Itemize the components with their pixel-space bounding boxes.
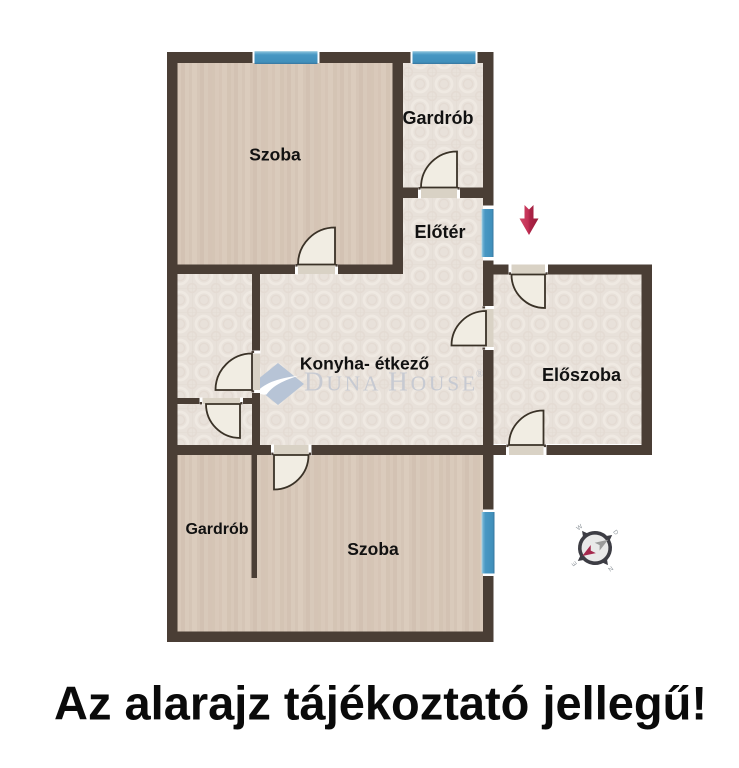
svg-text:®: ® — [476, 369, 484, 380]
svg-text:E: E — [571, 560, 579, 568]
svg-text:Előtér: Előtér — [414, 222, 465, 242]
svg-text:N: N — [606, 564, 614, 572]
svg-text:Konyha- étkező: Konyha- étkező — [300, 354, 429, 374]
svg-text:W: W — [575, 523, 584, 532]
svg-text:Szoba: Szoba — [347, 539, 399, 559]
svg-text:Gardrób: Gardrób — [185, 521, 248, 538]
svg-text:Az alarajz tájékoztató jellegű: Az alarajz tájékoztató jellegű! — [54, 677, 707, 730]
svg-text:D: D — [611, 529, 620, 537]
svg-text:Szoba: Szoba — [249, 145, 301, 165]
svg-text:Előszoba: Előszoba — [542, 365, 622, 385]
svg-text:Gardrób: Gardrób — [402, 108, 473, 128]
